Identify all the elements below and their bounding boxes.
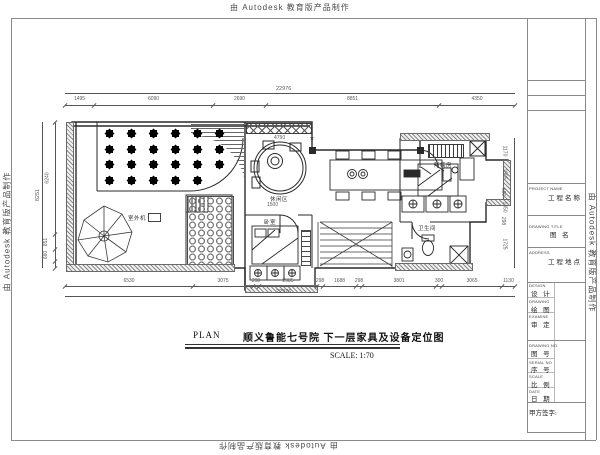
dim-label-right: 1170 — [501, 146, 507, 157]
dim-label-right: 1450 — [502, 201, 508, 212]
flower-marker — [194, 146, 201, 153]
dim-label: 300 — [432, 278, 446, 284]
wall-hatch — [400, 133, 490, 141]
flower-marker — [194, 161, 201, 168]
dim-label: 6090 — [147, 96, 161, 102]
flower-marker — [150, 130, 157, 137]
room-label-bathroom: 卫生间 — [418, 224, 436, 232]
column — [417, 147, 424, 154]
dim-label: 851 — [43, 237, 49, 245]
flower-marker — [128, 177, 135, 184]
dim-label: 1130 — [502, 278, 516, 284]
flower-marker — [194, 177, 201, 184]
dim-label: 3065 — [465, 278, 479, 284]
wardrobe — [428, 144, 464, 158]
flower-marker — [172, 146, 179, 153]
flower-marker — [172, 161, 179, 168]
flower-marker — [150, 146, 157, 153]
dim-label: 4350 — [470, 96, 484, 102]
spiral-feature — [78, 206, 132, 262]
dim-label: 6530 — [122, 278, 136, 284]
room-label-outdoor-unit: 室外机 — [128, 214, 146, 222]
dim-line-bottom-segments — [65, 286, 515, 287]
drawing-name: 顺义鲁能七号院 下一层家具及设备定位图 — [243, 329, 445, 344]
dim-label: 660 — [43, 251, 49, 259]
dim-label: 1688 — [333, 278, 347, 284]
flower-marker — [128, 130, 135, 137]
flower-marker — [106, 161, 113, 168]
flower-marker — [106, 130, 113, 137]
bathroom-fixtures — [402, 235, 468, 264]
dim-label-right: 298 — [500, 217, 506, 225]
flower-marker — [172, 177, 179, 184]
round-lounge — [251, 141, 306, 194]
dim-line-top-segments — [65, 105, 515, 106]
dim-line-top-total — [65, 93, 515, 94]
column — [309, 147, 316, 154]
plan-label: PLAN — [193, 330, 221, 340]
dim-label: 2690 — [233, 96, 247, 102]
plant-symbol: * — [310, 135, 314, 146]
dim-top-total: 22976 — [276, 86, 291, 92]
room-label-maid: 阿姨房 — [434, 161, 452, 169]
dim-bottom-total: 22976 — [276, 289, 291, 295]
dim-label: 298 — [313, 278, 327, 284]
dim-label-right: 600 — [500, 188, 506, 196]
dim-label: 8851 — [346, 96, 360, 102]
scale-text: SCALE: 1:70 — [330, 351, 374, 360]
dim-label: 298 — [352, 278, 366, 284]
dim-label: 3801 — [392, 278, 406, 284]
title-underline-2 — [185, 347, 400, 349]
window-strip — [246, 123, 312, 134]
radiator — [301, 230, 311, 266]
flower-marker — [172, 130, 179, 137]
wall-hatch — [66, 122, 74, 271]
dim-label-right: 1905 — [502, 168, 508, 179]
dim-label: 1495 — [73, 96, 87, 102]
flower-marker — [128, 161, 135, 168]
room-label-bedroom: 卧室 — [264, 218, 276, 226]
pebble-floor-area — [187, 196, 234, 268]
drawing-sheet: 由 Autodesk 教育版产品制作 由 Autodesk 教育版产品制作 由 … — [0, 0, 600, 455]
flower-marker — [150, 177, 157, 184]
flower-marker — [216, 161, 223, 168]
dim-label: 2985 — [281, 278, 295, 284]
dim-label: 6240 — [45, 172, 51, 183]
flower-marker — [128, 146, 135, 153]
flower-marker — [106, 146, 113, 153]
floor-plan-svg — [0, 0, 600, 455]
flower-marker — [106, 177, 113, 184]
dim-line-bottom-total — [65, 296, 515, 297]
flower-marker — [150, 161, 157, 168]
dim-left-total: 8251 — [35, 189, 41, 201]
title-underline-1 — [185, 344, 400, 345]
dim-label: 298 — [249, 278, 263, 284]
dim-bed-width: 1500 — [267, 202, 278, 208]
dim-line-right — [514, 138, 515, 268]
wall-hatch — [395, 263, 473, 271]
stairs — [318, 222, 392, 268]
dim-label-right: 1725 — [502, 238, 508, 249]
outdoor-unit-box — [148, 213, 161, 222]
flower-marker — [194, 130, 201, 137]
flower-marker — [216, 146, 223, 153]
dim-label: 3075 — [216, 278, 230, 284]
dim-lounge-width: 4750 — [274, 135, 285, 141]
bedroom-furniture — [250, 226, 300, 280]
flower-marker — [216, 130, 223, 137]
wall-hatch — [66, 264, 235, 272]
